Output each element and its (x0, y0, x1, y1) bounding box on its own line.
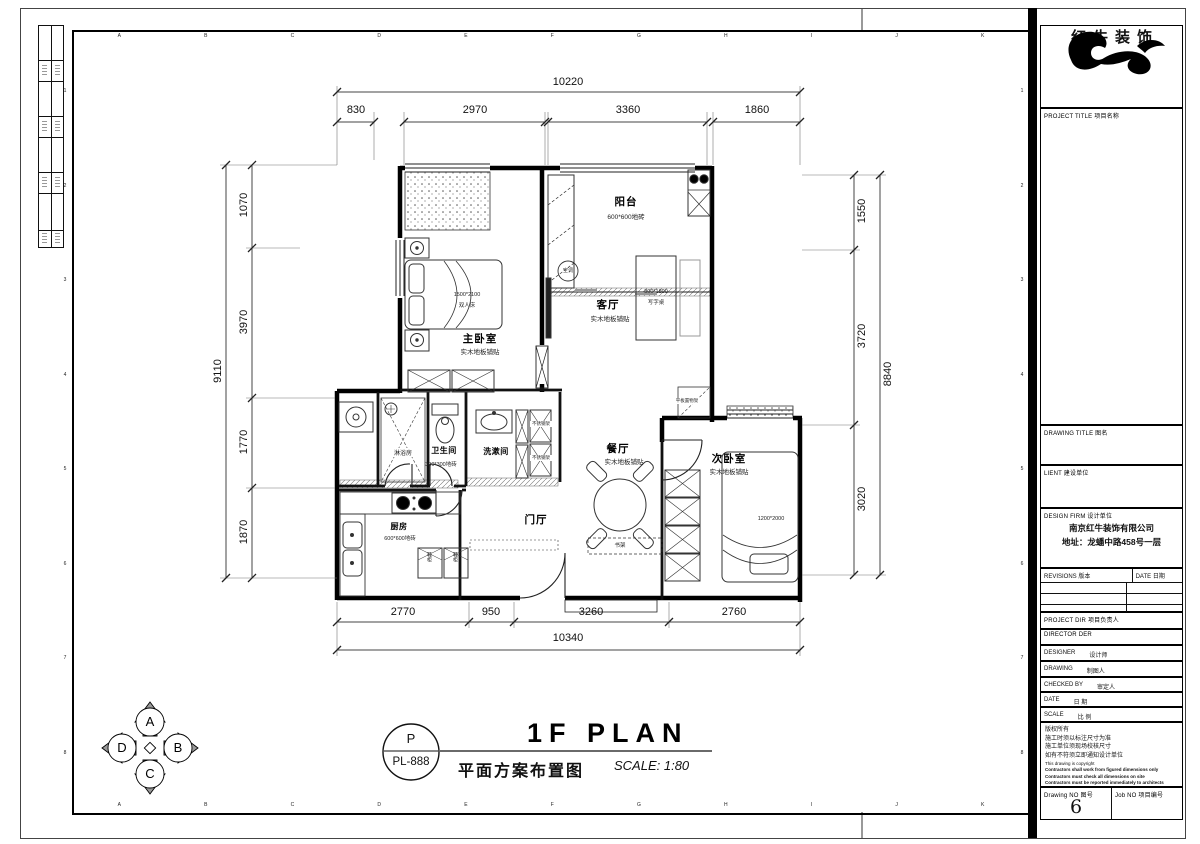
dim-top-seg: 3360 (598, 104, 658, 116)
copyright-line: Contractors shall work from figured dime… (1045, 767, 1178, 774)
dim-top-seg: 1860 (727, 104, 787, 116)
single-bed-size-label: 1200*2000 (741, 516, 801, 522)
room-label-kitchen: 厨房 (369, 521, 429, 532)
copyright-line: Contractors must be reported immediately… (1045, 780, 1178, 787)
drawing-no-value: 6 (1041, 796, 1111, 818)
grid-numbers-right: 12345678 (1017, 44, 1027, 800)
dim-right-seg: 3720 (856, 306, 868, 366)
drawing-title-box: DRAWING TITLE 图名 (1040, 425, 1183, 465)
bed-name-label: 双人床 (437, 301, 497, 309)
dim-left-seg: 1770 (238, 412, 250, 472)
copyright-line: 如有不符须立即通知设计单位 (1045, 752, 1178, 761)
stamp-letter: P (383, 731, 439, 746)
drawing-by-label: DRAWING (1044, 666, 1073, 675)
dim-bottom-seg: 2760 (704, 606, 764, 618)
room-label-bathroom: 卫生间 (414, 445, 474, 456)
project-dir-label: PROJECT DIR 项目负责人 (1041, 613, 1182, 626)
room-label-dining: 餐厅 (588, 441, 648, 456)
finish-label-bathroom: 300*300地砖 (411, 460, 471, 468)
director-label: DIRECTOR DER (1041, 630, 1182, 640)
room-label-master-bedroom: 主卧室 (450, 331, 510, 346)
drawing-frame (72, 30, 1032, 815)
dim-bottom-seg: 950 (461, 606, 521, 618)
revisions-box: REVISIONS 版本 DATE 日期 (1040, 568, 1183, 612)
desk-name-label: 写字桌 (626, 298, 686, 306)
revision-row (1041, 594, 1182, 605)
project-title-box: PROJECT TITLE 项目名称 (1040, 108, 1183, 425)
dim-bottom-overall: 10340 (538, 632, 598, 644)
finish-label-master-bedroom: 实木地板铺贴 (445, 346, 515, 356)
shelf-label: 平板置物架 (667, 398, 707, 404)
titleblock-separator-bar (1028, 8, 1037, 838)
finish-label-kitchen: 600*600地砖 (370, 534, 430, 542)
desk-size-label: 800*1800 (626, 289, 686, 295)
shoe-cabinet-label: 鞋柜 (426, 552, 433, 562)
dim-left-seg: 1070 (238, 175, 250, 235)
dim-left-seg: 3970 (238, 292, 250, 352)
bookshelf-label: 书架 (608, 541, 632, 549)
signature-strip (38, 25, 64, 248)
finish-label-dining: 实木地板铺贴 (589, 456, 659, 466)
dim-right-overall: 8840 (882, 344, 894, 404)
drawing-by-cn-label: 制图人 (1087, 666, 1105, 675)
design-firm-name: 南京红牛装饰有限公司 (1041, 522, 1182, 536)
compass-letter-d: D (112, 740, 132, 755)
copyright-line: 版权所有 (1045, 726, 1178, 735)
checked-by-cn-label: 审定人 (1097, 682, 1115, 691)
plan-scale-text: SCALE: 1:80 (614, 758, 689, 773)
design-firm-box: DESIGN FIRM 设计单位 南京红牛装饰有限公司 地址：龙蟠中路458号一… (1040, 508, 1183, 568)
copyright-line: 施工时须以标注尺寸为准 (1045, 735, 1178, 744)
room-label-second-bedroom: 次卧室 (699, 451, 759, 466)
project-title-label: PROJECT TITLE 项目名称 (1041, 109, 1182, 122)
finish-label-living: 实木地板铺贴 (575, 313, 645, 323)
drawing-by-box: DRAWING制图人 (1040, 661, 1183, 677)
dim-top-seg: 830 (326, 104, 386, 116)
finish-label-balcony: 600*600地砖 (591, 211, 661, 221)
finish-label-second-bedroom: 实木地板铺贴 (694, 466, 764, 476)
compass-letter-b: B (168, 740, 188, 755)
client-box: LIENT 建设单位 (1040, 465, 1183, 508)
shoe-cabinet-label: 鞋柜 (452, 552, 459, 562)
steel-rack-label: 不锈钢架 (530, 455, 552, 461)
grid-letters-bottom: ABCDEFGHIJK (76, 800, 1026, 810)
plan-title-cn: 平面方案布置图 (458, 757, 584, 781)
stamp-code: PL-888 (383, 756, 439, 768)
steel-rack-label: 不锈钢架 (530, 421, 552, 427)
designer-cn-label: 设计师 (1089, 650, 1107, 659)
logo-box: 红牛装饰 (1040, 25, 1183, 108)
drawing-number-box: Drawing NO 图号 6 Job NO 项目编号 (1040, 787, 1183, 820)
compass-letter-a: A (140, 714, 160, 729)
dim-top-seg: 2970 (445, 104, 505, 116)
project-dir-box: PROJECT DIR 项目负责人 (1040, 612, 1183, 629)
scale-cn-label: 比 例 (1078, 712, 1092, 721)
revisions-label: REVISIONS 版本 (1041, 569, 1133, 582)
copyright-box: 版权所有 施工时须以标注尺寸为准 施工单位须现场校核尺寸 如有不符须立即通知设计… (1040, 722, 1183, 787)
room-label-foyer: 门厅 (506, 512, 566, 527)
client-label: LIENT 建设单位 (1041, 466, 1182, 479)
room-label-washroom: 洗漱间 (466, 446, 526, 457)
checked-by-label: CHECKED BY (1044, 682, 1083, 691)
copyright-line: 施工单位须现场校核尺寸 (1045, 743, 1178, 752)
drawing-title-label: DRAWING TITLE 图名 (1041, 426, 1182, 439)
dim-right-seg: 3020 (856, 469, 868, 529)
director-box: DIRECTOR DER (1040, 629, 1183, 645)
date-cn-label: 日 期 (1074, 697, 1088, 706)
dim-right-seg: 1550 (856, 181, 868, 241)
dim-left-seg: 1870 (238, 502, 250, 562)
date-box: DATE日 期 (1040, 692, 1183, 707)
date-label: DATE (1044, 697, 1060, 706)
scale-box: SCALE比 例 (1040, 707, 1183, 722)
dim-bottom-seg: 2770 (373, 606, 433, 618)
design-firm-label: DESIGN FIRM 设计单位 (1041, 509, 1182, 522)
job-no-label: Job NO 项目编号 (1112, 788, 1182, 801)
drawing-sheet: ABCDEFGHIJK ABCDEFGHIJK 12345678 1234567… (0, 0, 1200, 844)
grid-letters-top: ABCDEFGHIJK (76, 31, 1026, 41)
checked-by-box: CHECKED BY审定人 (1040, 677, 1183, 692)
room-label-balcony: 阳台 (596, 194, 656, 209)
revisions-date-label: DATE 日期 (1133, 569, 1182, 582)
dim-bottom-seg: 3260 (561, 606, 621, 618)
designer-label: DESIGNER (1044, 650, 1075, 659)
designer-box: DESIGNER设计师 (1040, 645, 1183, 661)
design-firm-address: 地址：龙蟠中路458号一层 (1041, 536, 1182, 550)
ac-label: 空调 (558, 267, 578, 274)
scale-label: SCALE (1044, 712, 1064, 721)
compass-letter-c: C (140, 766, 160, 781)
bed-size-label: 1500*2100 (437, 292, 497, 298)
revision-row (1041, 583, 1182, 594)
brand-logo-icon (1041, 26, 1182, 78)
dim-top-overall: 10220 (538, 76, 598, 88)
plan-title-en: 1F PLAN (527, 718, 689, 749)
dim-left-overall: 9110 (212, 341, 224, 401)
